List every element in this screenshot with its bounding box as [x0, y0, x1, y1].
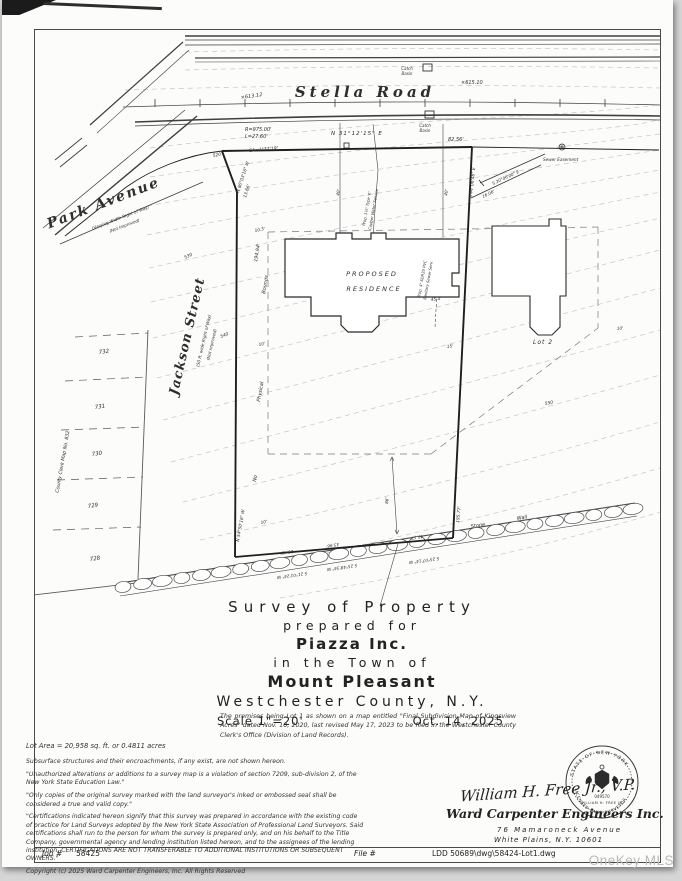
- map-label: 550: [544, 400, 553, 407]
- copyright-note: Copyright (c) 2025 Ward Carpenter Engine…: [26, 868, 364, 876]
- stone: [291, 553, 309, 566]
- map-label: Basin: [402, 71, 413, 76]
- map-label: RESIDENCE: [346, 285, 401, 293]
- map-label: Stone: [470, 522, 485, 530]
- town-name: Mount Pleasant: [162, 672, 542, 691]
- map-label: 25.48': [280, 549, 294, 556]
- map-label: 731: [94, 404, 105, 411]
- stone: [173, 571, 191, 584]
- survey-map: Stella RoadPark Avenue(Varying Width Rig…: [35, 30, 661, 610]
- job-number: 58425: [76, 849, 100, 858]
- map-label: Sewer Easement: [543, 157, 579, 162]
- map-label: ×613.12: [240, 92, 262, 101]
- copies-note: "Only copies of the original survey mark…: [26, 792, 364, 809]
- stone: [151, 574, 172, 588]
- map-label: CA=1°37'19": [249, 145, 279, 154]
- title-line3: in the Town of: [162, 655, 542, 670]
- title-line2: prepared for: [162, 618, 542, 633]
- stone-wall: [114, 502, 643, 596]
- map-label: 10': [258, 341, 265, 347]
- stone: [446, 529, 467, 543]
- map-label: S 25°07'14" W: [408, 556, 440, 565]
- county-clerk-lots-column: [35, 330, 148, 595]
- map-label: 16.06': [481, 189, 495, 199]
- map-label: 10.3': [254, 226, 265, 233]
- map-label: 732: [98, 349, 110, 356]
- map-label: Physical: [256, 381, 266, 403]
- map-label: 40': [443, 189, 449, 196]
- map-label: Lot 2: [533, 339, 553, 346]
- map-label: 33.96': [326, 542, 340, 549]
- onekey-mls-watermark: OneKey MLS: [589, 853, 674, 868]
- job-label: Job #: [42, 849, 62, 858]
- lot2-dwelling-outline: [492, 219, 566, 335]
- title-block: Survey of Property prepared for Piazza I…: [162, 598, 542, 728]
- map-label: N 31°12'15" E: [331, 131, 383, 137]
- stone: [269, 556, 290, 570]
- stone: [133, 577, 152, 591]
- map-label: PROPOSED: [346, 270, 398, 278]
- scan-edge-artifact: [44, 2, 162, 10]
- title-line1: Survey of Property: [162, 598, 542, 616]
- map-label: L=27.60': [245, 134, 268, 140]
- proposed-residence-outline: [285, 233, 459, 332]
- firm-address-city: White Plains, N.Y. 10601: [494, 836, 664, 844]
- file-label: File #: [354, 849, 376, 858]
- stone: [232, 562, 250, 575]
- map-label: 43.57': [410, 534, 424, 541]
- map-label: 540: [220, 331, 230, 340]
- lot-area-note: Lot Area = 20,958 sq. ft. or 0.4811 acre…: [26, 742, 364, 751]
- map-label: County Clerk Map No. 832: [55, 430, 72, 493]
- map-label: 520: [212, 152, 221, 159]
- map-label: N 54°50'16" W: [235, 509, 247, 543]
- alterations-note: "Unauthorized alterations or additions t…: [26, 771, 364, 788]
- survey-notes: Lot Area = 20,958 sq. ft. or 0.4811 acre…: [26, 742, 364, 881]
- seal-name: WILLIAM H. FREE JR.: [580, 801, 624, 805]
- map-label: 45.4': [431, 296, 442, 302]
- map-label: 10': [617, 325, 624, 331]
- subsurface-note: Subsurface structures and their encroach…: [26, 758, 364, 766]
- survey-document-page: Stella RoadPark Avenue(Varying Width Rig…: [2, 0, 673, 867]
- map-label: 530: [183, 252, 193, 261]
- client-name: Piazza Inc.: [162, 635, 542, 653]
- county-name: Westchester County, N.Y.: [162, 694, 542, 710]
- map-label: No: [252, 475, 259, 483]
- map-label: 195.77': [455, 506, 463, 523]
- map-label: Wall: [516, 514, 528, 522]
- firm-address-street: 76 Mamaroneck Avenue: [497, 826, 657, 834]
- map-label: 82.56': [448, 137, 464, 143]
- map-label: 194.94': [253, 243, 262, 262]
- map-label: ×615.10: [461, 80, 483, 86]
- stone: [505, 520, 526, 534]
- map-label: S 25°48'34" W: [326, 563, 358, 572]
- map-label: 729: [87, 503, 99, 510]
- map-label: Bounds: [261, 275, 270, 295]
- stone: [309, 550, 328, 564]
- stella-road-lines: [123, 36, 660, 126]
- map-label: Stella Road: [295, 83, 435, 101]
- map-label: 86': [384, 497, 390, 504]
- stone: [210, 565, 231, 579]
- firm-name: Ward Carpenter Engineers Inc.: [446, 806, 666, 821]
- map-label: S 21°01'24" W: [276, 571, 308, 580]
- stone: [114, 580, 132, 593]
- map-label: Basin: [420, 128, 431, 133]
- map-label: R=975.00': [245, 127, 272, 133]
- map-label: 15': [447, 343, 454, 349]
- stone: [192, 568, 211, 582]
- map-label: 728: [89, 556, 101, 563]
- drawing-file-path: LDD 50689\dwg\58424-Lot1.dwg: [432, 849, 556, 858]
- stone: [251, 559, 270, 573]
- map-label: 10': [260, 519, 267, 525]
- map-label: 730: [91, 451, 103, 458]
- premises-note: The premises being Lot 1 as shown on a m…: [220, 712, 516, 740]
- lot1-boundary: [65, 147, 659, 557]
- dimension-leader-lines: [380, 457, 399, 606]
- map-label: 13.66': [242, 184, 252, 199]
